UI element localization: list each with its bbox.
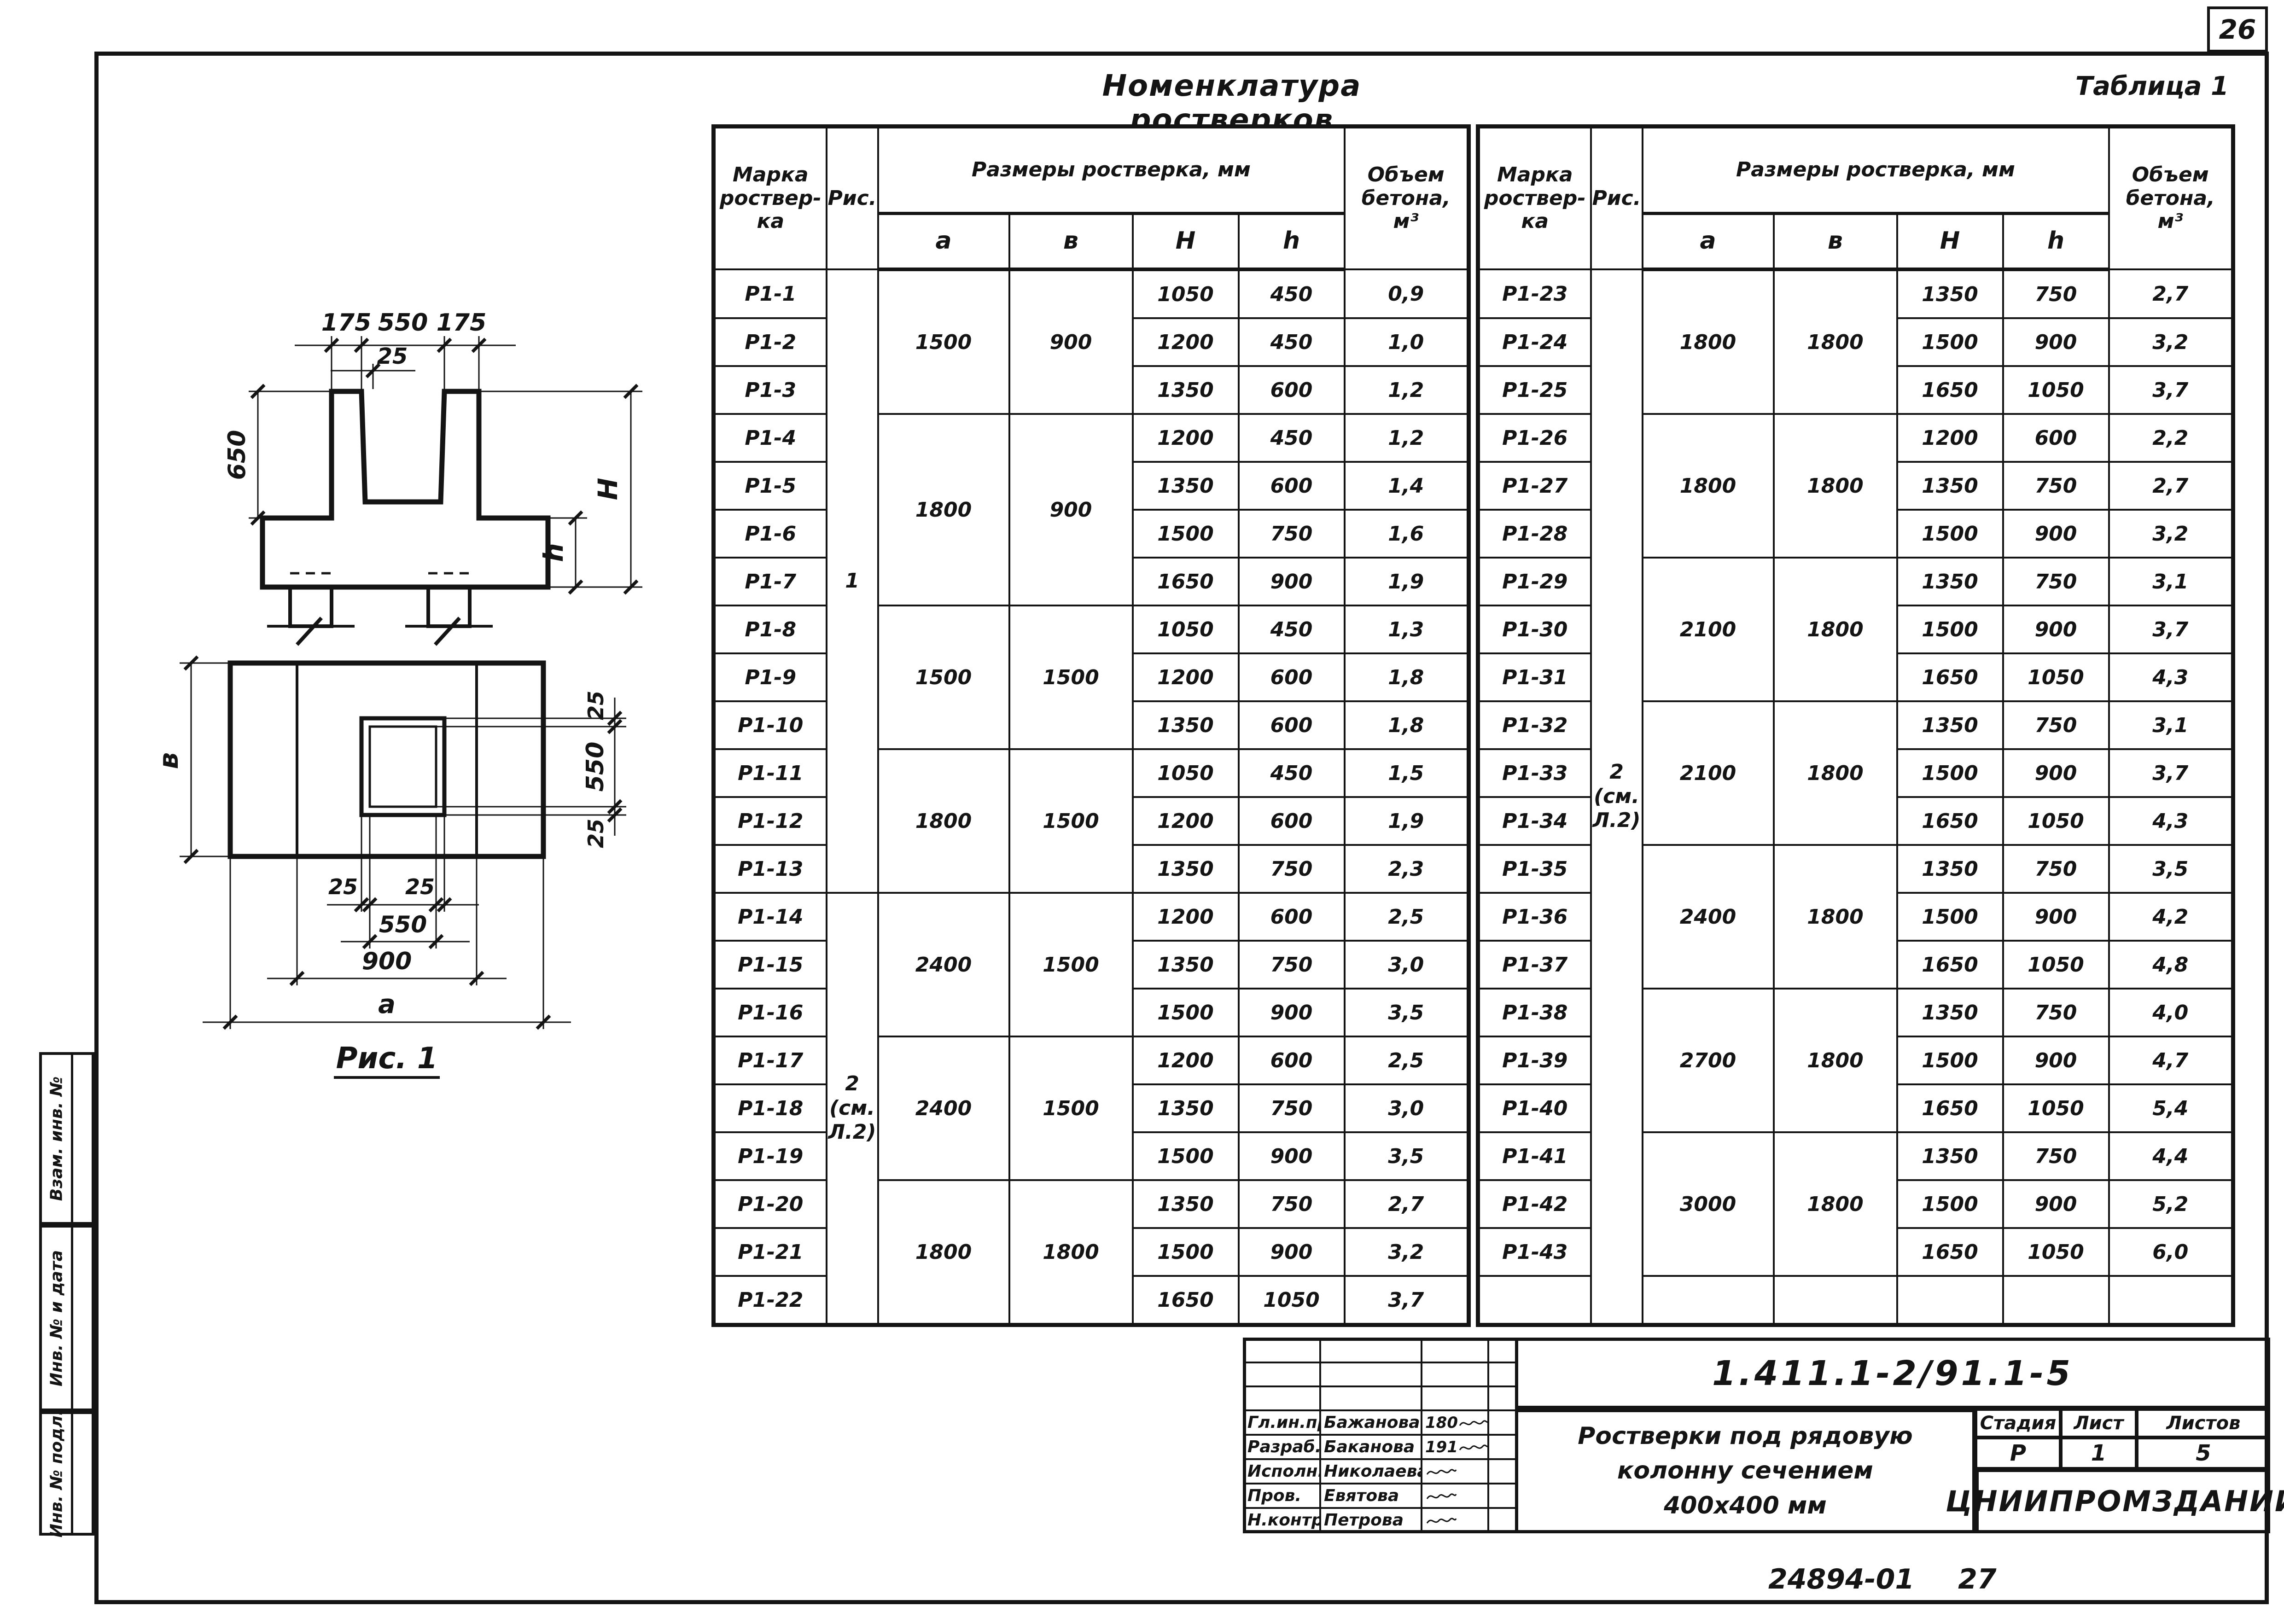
margin-stamp-vzam: Взам. инв. № bbox=[39, 1052, 94, 1225]
empty-cell bbox=[1244, 1339, 1320, 1362]
row-mark: Р1-10 bbox=[714, 701, 827, 749]
signature-squiggle-icon bbox=[1458, 1441, 1488, 1455]
title-block-doc-number: 1.411.1-2/91.1-5 bbox=[1515, 1338, 2270, 1409]
footer-page: 27 bbox=[1958, 1563, 1997, 1595]
row-mark: Р1-41 bbox=[1478, 1132, 1591, 1180]
dim-label-25-bot-right: 25 bbox=[405, 874, 435, 899]
volume-value: 3,1 bbox=[2109, 558, 2233, 605]
signature-scribble bbox=[1422, 1459, 1488, 1484]
signature-name: Бажанова bbox=[1320, 1410, 1422, 1435]
dim-H-value: 1500 bbox=[1897, 749, 2003, 797]
dim-label-175-right: 175 bbox=[437, 309, 487, 337]
col-header-h: h bbox=[1239, 214, 1345, 270]
dim-a-value: 2100 bbox=[1643, 558, 1774, 701]
volume-value: 4,3 bbox=[2109, 653, 2233, 701]
dim-H-value: 1350 bbox=[1133, 1180, 1239, 1228]
row-mark: Р1-34 bbox=[1478, 797, 1591, 845]
volume-value: 1,9 bbox=[1345, 558, 1469, 605]
signature-date bbox=[1488, 1435, 1516, 1459]
title-block-signature-grid: Гл.ин.пр.Бажанова180Разраб.Баканова191Ис… bbox=[1243, 1338, 1517, 1533]
dim-h-value: 600 bbox=[1239, 893, 1345, 941]
dim-h-value: 600 bbox=[2003, 414, 2109, 462]
volume-value: 1,2 bbox=[1345, 366, 1469, 414]
margin-stamp-inv-podl-label: Инв. № подл. bbox=[47, 1409, 66, 1538]
dim-a-value: 1800 bbox=[878, 749, 1009, 893]
dim-H-value: 1350 bbox=[1133, 1084, 1239, 1132]
signature-date bbox=[1488, 1508, 1516, 1532]
signature-date bbox=[1488, 1484, 1516, 1508]
project-title-line-1: Ростверки под рядовую bbox=[1578, 1419, 1912, 1454]
dim-H-value: 1500 bbox=[1897, 510, 2003, 558]
dim-h-value: 750 bbox=[2003, 462, 2109, 510]
dim-H-value: 1200 bbox=[1133, 318, 1239, 366]
dim-H-value: 1650 bbox=[1897, 1228, 2003, 1276]
dim-H-value: 1350 bbox=[1897, 845, 2003, 893]
pile-break-mark-right bbox=[435, 618, 460, 645]
dim-H-value: 1200 bbox=[1897, 414, 2003, 462]
volume-value: 6,0 bbox=[2109, 1228, 2233, 1276]
dim-b-value: 1800 bbox=[1009, 1180, 1133, 1325]
footer-code: 24894-01 bbox=[1768, 1563, 1914, 1595]
empty-cell bbox=[1488, 1362, 1516, 1386]
row-mark: Р1-28 bbox=[1478, 510, 1591, 558]
dim-H-value: 1500 bbox=[1897, 318, 2003, 366]
volume-value: 4,4 bbox=[2109, 1132, 2233, 1180]
dim-a-value: 1500 bbox=[878, 269, 1009, 414]
dim-h-value: 750 bbox=[2003, 1132, 2109, 1180]
volume-value: 3,5 bbox=[1345, 1132, 1469, 1180]
dim-h-value: 900 bbox=[1239, 558, 1345, 605]
dim-h-value: 750 bbox=[2003, 558, 2109, 605]
signature-row: Гл.ин.пр.Бажанова180 bbox=[1244, 1410, 1516, 1435]
dim-b-value: 1800 bbox=[1774, 269, 1897, 414]
empty-cell bbox=[1244, 1386, 1320, 1410]
fig-reference: 2 (см. Л.2) bbox=[827, 893, 878, 1325]
dim-label-b: в bbox=[153, 752, 184, 769]
margin-stamp-vzam-label: Взам. инв. № bbox=[47, 1076, 66, 1201]
dim-a-value: 1800 bbox=[878, 1180, 1009, 1325]
dim-b-value: 1800 bbox=[1774, 414, 1897, 558]
dim-H-value: 1650 bbox=[1133, 558, 1239, 605]
volume-value: 3,7 bbox=[2109, 605, 2233, 653]
signature-name: Евятова bbox=[1320, 1484, 1422, 1508]
signature-row: Н.контр.Петрова bbox=[1244, 1508, 1516, 1532]
volume-value: 5,4 bbox=[2109, 1084, 2233, 1132]
dim-label-25-right-bottom: 25 bbox=[583, 819, 608, 848]
col-header-a: а bbox=[1643, 214, 1774, 270]
margin-stamp-inv-podl: Инв. № подл. bbox=[39, 1411, 94, 1536]
row-mark: Р1-30 bbox=[1478, 605, 1591, 653]
dim-h-value: 600 bbox=[1239, 653, 1345, 701]
signature-scribble: 191 bbox=[1422, 1435, 1488, 1459]
row-mark: Р1-36 bbox=[1478, 893, 1591, 941]
signature-role: Н.контр. bbox=[1244, 1508, 1320, 1532]
dim-a-value: 3000 bbox=[1643, 1132, 1774, 1276]
row-mark: Р1-1 bbox=[714, 269, 827, 318]
organization-name: ЦНИИПРОМЗДАНИЙ bbox=[1946, 1484, 2284, 1518]
dim-a-value: 2400 bbox=[878, 1036, 1009, 1180]
margin-stamp-vzam-blank bbox=[73, 1055, 92, 1222]
title-block-project-title: Ростверки под рядовую колонну сечением 4… bbox=[1515, 1409, 1975, 1533]
dim-H-value bbox=[1897, 1276, 2003, 1325]
col-header-H: Н bbox=[1133, 214, 1239, 270]
corner-page-number-value: 26 bbox=[2219, 14, 2256, 45]
signature-role: Гл.ин.пр. bbox=[1244, 1410, 1320, 1435]
row-mark: Р1-16 bbox=[714, 989, 827, 1036]
volume-value: 2,7 bbox=[1345, 1180, 1469, 1228]
margin-stamp-inv-podl-blank bbox=[73, 1414, 92, 1533]
dim-H-value: 1350 bbox=[1133, 462, 1239, 510]
dim-H-value: 1050 bbox=[1133, 749, 1239, 797]
dim-H-value: 1350 bbox=[1897, 269, 2003, 318]
dim-h-value: 1050 bbox=[2003, 653, 2109, 701]
margin-stamp-inv-data-label: Инв. № и дата bbox=[47, 1250, 66, 1386]
sheets-value: 5 bbox=[2137, 1438, 2270, 1469]
dim-H-value: 1500 bbox=[1133, 510, 1239, 558]
col-header-h: h bbox=[2003, 214, 2109, 270]
volume-value: 2,5 bbox=[1345, 893, 1469, 941]
empty-cell bbox=[1320, 1386, 1422, 1410]
volume-value: 4,2 bbox=[2109, 893, 2233, 941]
signature-row: Исполн.Николаева bbox=[1244, 1459, 1516, 1484]
empty-cell bbox=[1244, 1362, 1320, 1386]
row-mark: Р1-39 bbox=[1478, 1036, 1591, 1084]
empty-cell bbox=[1488, 1339, 1516, 1362]
table-caption: Таблица 1 bbox=[2045, 71, 2229, 101]
nomenclature-table-left: Марка роствер- ка Рис. Размеры ростверка… bbox=[711, 124, 1471, 1327]
empty-cell bbox=[1422, 1386, 1488, 1410]
dim-h-value: 450 bbox=[1239, 318, 1345, 366]
table-row: Р1-11150090010504500,9 bbox=[714, 269, 1469, 318]
dim-h-value: 600 bbox=[1239, 1036, 1345, 1084]
row-mark: Р1-9 bbox=[714, 653, 827, 701]
dim-h-value: 600 bbox=[1239, 797, 1345, 845]
dim-H-value: 1500 bbox=[1897, 893, 2003, 941]
empty-cell bbox=[1320, 1362, 1422, 1386]
signature-role: Исполн. bbox=[1244, 1459, 1320, 1484]
volume-value bbox=[2109, 1276, 2233, 1325]
dim-label-25-right-top: 25 bbox=[583, 691, 608, 720]
dim-H-value: 1350 bbox=[1133, 701, 1239, 749]
dim-H-value: 1650 bbox=[1897, 1084, 2003, 1132]
margin-stamp-inv-podl-label-cell: Инв. № подл. bbox=[42, 1414, 73, 1533]
row-mark: Р1-12 bbox=[714, 797, 827, 845]
dim-label-25-bot-left: 25 bbox=[328, 874, 358, 899]
signature-squiggle-icon bbox=[1425, 1490, 1457, 1503]
row-mark: Р1-6 bbox=[714, 510, 827, 558]
dim-H-value: 1350 bbox=[1897, 462, 2003, 510]
signature-role: Пров. bbox=[1244, 1484, 1320, 1508]
dim-H-value: 1200 bbox=[1133, 1036, 1239, 1084]
row-mark: Р1-29 bbox=[1478, 558, 1591, 605]
row-mark: Р1-22 bbox=[714, 1276, 827, 1325]
dim-a-value: 1800 bbox=[1643, 414, 1774, 558]
dim-h-value: 1050 bbox=[1239, 1276, 1345, 1325]
volume-value: 4,0 bbox=[2109, 989, 2233, 1036]
empty-cell bbox=[1488, 1386, 1516, 1410]
dim-h-value: 750 bbox=[1239, 510, 1345, 558]
volume-value: 3,7 bbox=[2109, 749, 2233, 797]
volume-value: 3,5 bbox=[1345, 989, 1469, 1036]
dim-H-value: 1500 bbox=[1133, 1228, 1239, 1276]
dim-a-value bbox=[1643, 1276, 1774, 1325]
row-mark: Р1-37 bbox=[1478, 941, 1591, 989]
col-header-fig: Рис. bbox=[827, 127, 878, 270]
row-mark: Р1-32 bbox=[1478, 701, 1591, 749]
dim-h-value: 750 bbox=[2003, 269, 2109, 318]
dim-h-value: 900 bbox=[1239, 989, 1345, 1036]
row-mark: Р1-31 bbox=[1478, 653, 1591, 701]
dim-h-value: 600 bbox=[1239, 462, 1345, 510]
dim-h-value: 900 bbox=[2003, 893, 2109, 941]
dim-H-value: 1500 bbox=[1897, 1036, 2003, 1084]
dim-H-value: 1350 bbox=[1133, 845, 1239, 893]
grillage-section-outline bbox=[262, 391, 548, 587]
dim-H-value: 1500 bbox=[1133, 1132, 1239, 1180]
volume-value: 1,5 bbox=[1345, 749, 1469, 797]
row-mark: Р1-19 bbox=[714, 1132, 827, 1180]
row-mark: Р1-4 bbox=[714, 414, 827, 462]
stage-value: Р bbox=[1975, 1438, 2061, 1469]
row-mark: Р1-2 bbox=[714, 318, 827, 366]
row-mark: Р1-17 bbox=[714, 1036, 827, 1084]
volume-value: 3,1 bbox=[2109, 701, 2233, 749]
sheets-label: Листов bbox=[2137, 1409, 2270, 1438]
signature-name: Петрова bbox=[1320, 1508, 1422, 1532]
row-mark: Р1-13 bbox=[714, 845, 827, 893]
signature-row: Пров.Евятова bbox=[1244, 1484, 1516, 1508]
row-mark: Р1-5 bbox=[714, 462, 827, 510]
volume-value: 1,6 bbox=[1345, 510, 1469, 558]
signature-scribble bbox=[1422, 1508, 1488, 1532]
row-mark: Р1-20 bbox=[714, 1180, 827, 1228]
dim-b-value: 1800 bbox=[1774, 558, 1897, 701]
dim-h-value: 750 bbox=[1239, 845, 1345, 893]
signature-squiggle-icon bbox=[1458, 1416, 1488, 1430]
signature-scribble: 180 bbox=[1422, 1410, 1488, 1435]
row-mark: Р1-15 bbox=[714, 941, 827, 989]
doc-number-value: 1.411.1-2/91.1-5 bbox=[1712, 1354, 2073, 1393]
dim-label-650: 650 bbox=[223, 430, 251, 480]
dim-h-value: 600 bbox=[1239, 366, 1345, 414]
volume-value: 3,7 bbox=[2109, 366, 2233, 414]
figure-plan-drawing: в 25 550 25 25 25 550 900 bbox=[111, 654, 709, 1082]
footer-archive-number: 24894-01 27 bbox=[1768, 1563, 2091, 1595]
dim-h-value: 450 bbox=[1239, 749, 1345, 797]
volume-value: 1,8 bbox=[1345, 701, 1469, 749]
dim-H-value: 1200 bbox=[1133, 797, 1239, 845]
dim-label-H: Н bbox=[592, 478, 623, 501]
dim-b-value: 1500 bbox=[1009, 893, 1133, 1036]
row-mark: Р1-18 bbox=[714, 1084, 827, 1132]
dim-label-a: а bbox=[378, 990, 396, 1019]
dim-h-value: 900 bbox=[2003, 1036, 2109, 1084]
dim-b-value: 1500 bbox=[1009, 605, 1133, 749]
dim-H-value: 1500 bbox=[1897, 1180, 2003, 1228]
dim-h-value: 1050 bbox=[2003, 1228, 2109, 1276]
col-header-dims: Размеры ростверка, мм bbox=[878, 127, 1345, 214]
dim-H-value: 1500 bbox=[1897, 605, 2003, 653]
volume-value: 3,2 bbox=[2109, 510, 2233, 558]
volume-value: 2,7 bbox=[2109, 462, 2233, 510]
volume-value: 4,8 bbox=[2109, 941, 2233, 989]
volume-value: 1,4 bbox=[1345, 462, 1469, 510]
col-header-b: в bbox=[1009, 214, 1133, 270]
dim-h-value: 750 bbox=[1239, 941, 1345, 989]
dim-label-175-left: 175 bbox=[321, 309, 372, 337]
dim-b-value: 1800 bbox=[1774, 1132, 1897, 1276]
row-mark: Р1-25 bbox=[1478, 366, 1591, 414]
dim-h-value: 900 bbox=[2003, 510, 2109, 558]
volume-value: 4,3 bbox=[2109, 797, 2233, 845]
sheet-value: 1 bbox=[2061, 1438, 2137, 1469]
margin-stamp-inv-data: Инв. № и дата bbox=[39, 1225, 94, 1411]
drawing-sheet: 26 Взам. инв. № Инв. № и дата Инв. № под… bbox=[0, 0, 2284, 1624]
row-mark: Р1-3 bbox=[714, 366, 827, 414]
row-mark: Р1-7 bbox=[714, 558, 827, 605]
dim-h-value: 900 bbox=[1239, 1132, 1345, 1180]
volume-value: 3,5 bbox=[2109, 845, 2233, 893]
dim-h-value: 900 bbox=[2003, 1180, 2109, 1228]
title-block-empty-row bbox=[1244, 1362, 1516, 1386]
volume-value: 1,0 bbox=[1345, 318, 1469, 366]
signature-date bbox=[1488, 1410, 1516, 1435]
title-block-empty-row bbox=[1244, 1386, 1516, 1410]
volume-value: 3,2 bbox=[2109, 318, 2233, 366]
col-header-b: в bbox=[1774, 214, 1897, 270]
dim-h-value: 750 bbox=[1239, 1084, 1345, 1132]
dim-h-value: 900 bbox=[1239, 1228, 1345, 1276]
table-row: Р1-232 (см. Л.2)1800180013507502,7 bbox=[1478, 269, 2233, 318]
volume-value: 1,8 bbox=[1345, 653, 1469, 701]
title-block-stage-grid: Стадия Лист Листов Р 1 5 bbox=[1975, 1409, 2270, 1469]
volume-value: 0,9 bbox=[1345, 269, 1469, 318]
figure-section-drawing: 175 550 175 25 650 h Н bbox=[111, 276, 709, 649]
pile-right bbox=[428, 587, 470, 626]
row-mark: Р1-21 bbox=[714, 1228, 827, 1276]
dim-h-value: 450 bbox=[1239, 269, 1345, 318]
corner-page-number: 26 bbox=[2207, 6, 2268, 52]
dim-a-value: 1800 bbox=[1643, 269, 1774, 414]
dim-a-value: 1500 bbox=[878, 605, 1009, 749]
pile-break-mark-left bbox=[297, 618, 321, 645]
empty-cell bbox=[1422, 1362, 1488, 1386]
figure-caption: Рис. 1 bbox=[336, 1042, 438, 1076]
dim-a-value: 1800 bbox=[878, 414, 1009, 605]
empty-cell bbox=[1320, 1339, 1422, 1362]
signature-date bbox=[1488, 1459, 1516, 1484]
dim-H-value: 1650 bbox=[1897, 366, 2003, 414]
volume-value: 5,2 bbox=[2109, 1180, 2233, 1228]
dim-b-value: 1500 bbox=[1009, 749, 1133, 893]
col-header-dims: Размеры ростверка, мм bbox=[1643, 127, 2109, 214]
volume-value: 3,2 bbox=[1345, 1228, 1469, 1276]
empty-cell bbox=[1422, 1339, 1488, 1362]
dim-a-value: 2400 bbox=[878, 893, 1009, 1036]
dim-H-value: 1200 bbox=[1133, 414, 1239, 462]
socket-inner bbox=[370, 727, 436, 807]
dim-label-550-top: 550 bbox=[378, 309, 428, 337]
project-title-line-2: колонну сечением bbox=[1617, 1454, 1873, 1488]
dim-b-value: 900 bbox=[1009, 269, 1133, 414]
dim-H-value: 1200 bbox=[1133, 893, 1239, 941]
dim-b-value bbox=[1774, 1276, 1897, 1325]
col-header-volume: Объем бетона, м³ bbox=[2109, 127, 2233, 270]
sheet-label: Лист bbox=[2061, 1409, 2137, 1438]
fig-reference: 1 bbox=[827, 269, 878, 893]
dim-b-value: 900 bbox=[1009, 414, 1133, 605]
signature-squiggle-icon bbox=[1425, 1514, 1457, 1528]
row-mark: Р1-11 bbox=[714, 749, 827, 797]
volume-value: 2,7 bbox=[2109, 269, 2233, 318]
row-mark: Р1-38 bbox=[1478, 989, 1591, 1036]
signature-scribble bbox=[1422, 1484, 1488, 1508]
margin-stamp-inv-data-label-cell: Инв. № и дата bbox=[42, 1228, 73, 1409]
dim-b-value: 1800 bbox=[1774, 701, 1897, 845]
dim-h-value: 1050 bbox=[2003, 1084, 2109, 1132]
row-mark: Р1-8 bbox=[714, 605, 827, 653]
dim-label-550-bottom: 550 bbox=[379, 911, 427, 938]
dim-H-value: 1650 bbox=[1897, 941, 2003, 989]
dim-h-value: 450 bbox=[1239, 605, 1345, 653]
col-header-fig: Рис. bbox=[1591, 127, 1643, 270]
row-mark: Р1-33 bbox=[1478, 749, 1591, 797]
col-header-mark: Марка роствер- ка bbox=[714, 127, 827, 270]
dim-h-value: 750 bbox=[2003, 989, 2109, 1036]
dim-h-value: 1050 bbox=[2003, 366, 2109, 414]
volume-value: 4,7 bbox=[2109, 1036, 2233, 1084]
dim-h-value: 1050 bbox=[2003, 941, 2109, 989]
row-mark: Р1-24 bbox=[1478, 318, 1591, 366]
row-mark: Р1-26 bbox=[1478, 414, 1591, 462]
dim-label-25: 25 bbox=[377, 343, 408, 369]
volume-value: 2,5 bbox=[1345, 1036, 1469, 1084]
title-block-organization: ЦНИИПРОМЗДАНИЙ bbox=[1975, 1469, 2270, 1533]
dim-h-value: 600 bbox=[1239, 701, 1345, 749]
dim-h-value: 1050 bbox=[2003, 797, 2109, 845]
row-mark: Р1-14 bbox=[714, 893, 827, 941]
dim-h-value: 750 bbox=[2003, 845, 2109, 893]
volume-value: 3,0 bbox=[1345, 941, 1469, 989]
dim-h-value: 450 bbox=[1239, 414, 1345, 462]
dim-H-value: 1650 bbox=[1897, 797, 2003, 845]
volume-value: 3,7 bbox=[1345, 1276, 1469, 1325]
dim-H-value: 1350 bbox=[1133, 366, 1239, 414]
dim-H-value: 1050 bbox=[1133, 605, 1239, 653]
dim-a-value: 2100 bbox=[1643, 701, 1774, 845]
stage-label: Стадия bbox=[1975, 1409, 2061, 1438]
dim-h-value: 750 bbox=[1239, 1180, 1345, 1228]
pile-left bbox=[290, 587, 332, 626]
dim-H-value: 1650 bbox=[1133, 1276, 1239, 1325]
dim-h-value bbox=[2003, 1276, 2109, 1325]
dim-h-value: 900 bbox=[2003, 749, 2109, 797]
fig-reference: 2 (см. Л.2) bbox=[1591, 269, 1643, 1325]
signature-name: Николаева bbox=[1320, 1459, 1422, 1484]
volume-value: 2,3 bbox=[1345, 845, 1469, 893]
volume-value: 1,2 bbox=[1345, 414, 1469, 462]
project-title-line-3: 400x400 мм bbox=[1664, 1489, 1827, 1523]
row-mark: Р1-23 bbox=[1478, 269, 1591, 318]
row-mark: Р1-42 bbox=[1478, 1180, 1591, 1228]
row-mark: Р1-35 bbox=[1478, 845, 1591, 893]
col-header-mark: Марка роствер- ка bbox=[1478, 127, 1591, 270]
row-mark: Р1-43 bbox=[1478, 1228, 1591, 1276]
dim-b-value: 1500 bbox=[1009, 1036, 1133, 1180]
dim-label-900: 900 bbox=[362, 948, 412, 975]
grillage-plan-outline bbox=[230, 663, 543, 856]
dim-H-value: 1050 bbox=[1133, 269, 1239, 318]
